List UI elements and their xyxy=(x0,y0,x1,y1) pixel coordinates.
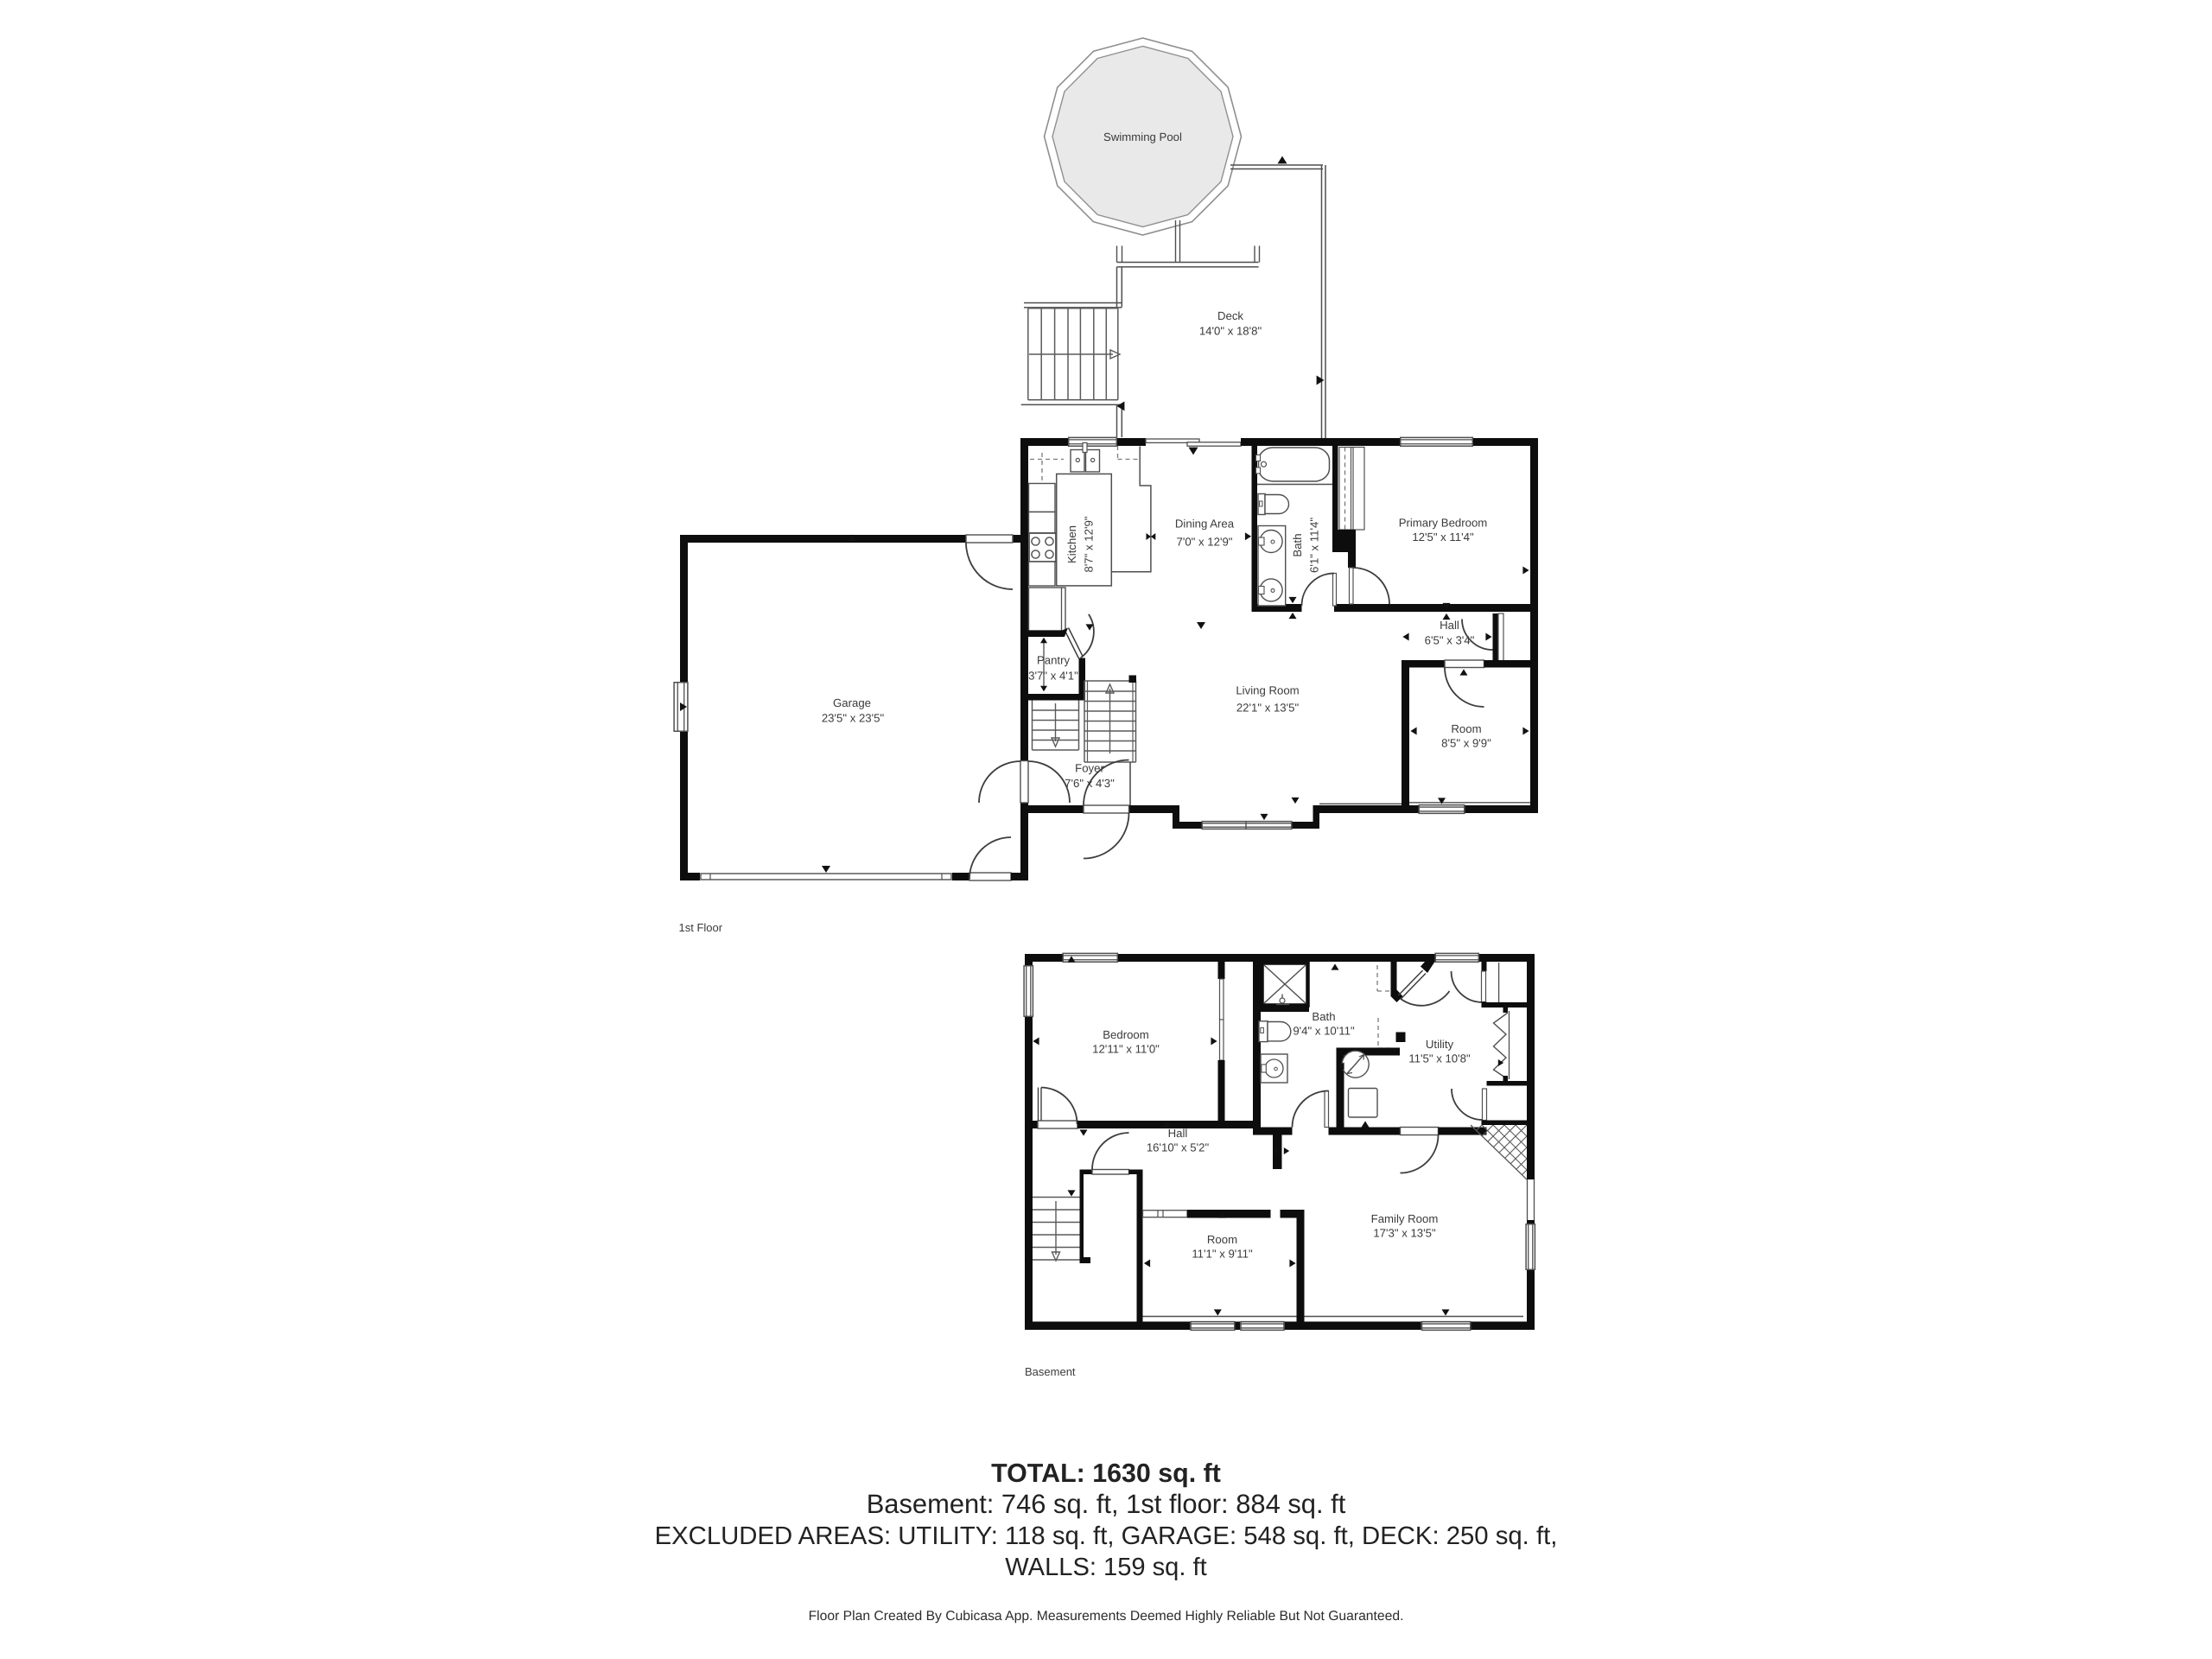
svg-text:Utility: Utility xyxy=(1426,1038,1454,1051)
svg-text:Bath: Bath xyxy=(1312,1010,1335,1023)
svg-text:Bedroom: Bedroom xyxy=(1103,1028,1149,1041)
svg-text:Basement: 746 sq. ft, 1st floo: Basement: 746 sq. ft, 1st floor: 884 sq.… xyxy=(867,1489,1346,1519)
svg-text:8'5" x 9'9": 8'5" x 9'9" xyxy=(1441,737,1491,750)
svg-text:Foyer: Foyer xyxy=(1075,762,1104,775)
svg-text:22'1" x 13'5": 22'1" x 13'5" xyxy=(1236,702,1300,715)
svg-text:23'5" x 23'5": 23'5" x 23'5" xyxy=(822,712,885,725)
svg-text:Room: Room xyxy=(1451,722,1481,735)
svg-text:Kitchen: Kitchen xyxy=(1065,525,1078,563)
svg-text:9'4" x 10'11": 9'4" x 10'11" xyxy=(1293,1025,1355,1038)
svg-text:7'6" x 4'3": 7'6" x 4'3" xyxy=(1065,777,1115,790)
svg-text:8'7" x 12'9": 8'7" x 12'9" xyxy=(1083,516,1096,572)
svg-text:Hall: Hall xyxy=(1168,1127,1188,1140)
svg-text:Pantry: Pantry xyxy=(1037,654,1071,667)
svg-text:Bath: Bath xyxy=(1291,533,1304,556)
svg-text:14'0" x 18'8": 14'0" x 18'8" xyxy=(1199,325,1262,338)
svg-text:1st Floor: 1st Floor xyxy=(679,921,723,934)
svg-text:Family Room: Family Room xyxy=(1371,1212,1439,1225)
svg-text:6'5" x 3'4": 6'5" x 3'4" xyxy=(1425,634,1475,647)
svg-text:TOTAL: 1630 sq. ft: TOTAL: 1630 sq. ft xyxy=(991,1459,1221,1488)
svg-text:Room: Room xyxy=(1207,1233,1237,1246)
svg-text:12'5" x 11'4": 12'5" x 11'4" xyxy=(1412,531,1474,543)
svg-text:Primary Bedroom: Primary Bedroom xyxy=(1399,517,1488,530)
svg-text:16'10" x 5'2": 16'10" x 5'2" xyxy=(1147,1141,1210,1154)
svg-text:EXCLUDED AREAS: UTILITY: 118 s: EXCLUDED AREAS: UTILITY: 118 sq. ft, GAR… xyxy=(655,1522,1558,1550)
svg-text:12'11" x 11'0": 12'11" x 11'0" xyxy=(1092,1043,1160,1056)
svg-text:Floor Plan Created By Cubicasa: Floor Plan Created By Cubicasa App. Meas… xyxy=(809,1609,1404,1624)
svg-text:Garage: Garage xyxy=(833,696,871,709)
svg-text:11'1" x 9'11": 11'1" x 9'11" xyxy=(1192,1248,1253,1261)
svg-text:Basement: Basement xyxy=(1025,1365,1076,1378)
svg-text:Living Room: Living Room xyxy=(1236,684,1299,697)
svg-text:3'7" x 4'1": 3'7" x 4'1" xyxy=(1028,670,1078,683)
svg-text:7'0" x 12'9": 7'0" x 12'9" xyxy=(1177,536,1233,549)
svg-text:6'1" x 11'4": 6'1" x 11'4" xyxy=(1308,518,1321,573)
svg-text:11'5" x 10'8": 11'5" x 10'8" xyxy=(1408,1052,1471,1065)
svg-text:17'3" x 13'5": 17'3" x 13'5" xyxy=(1373,1227,1436,1240)
svg-text:Dining Area: Dining Area xyxy=(1175,518,1235,531)
svg-text:Swimming Pool: Swimming Pool xyxy=(1103,130,1182,143)
svg-text:Deck: Deck xyxy=(1217,309,1243,322)
svg-text:Hall: Hall xyxy=(1440,619,1459,632)
svg-text:WALLS: 159 sq. ft: WALLS: 159 sq. ft xyxy=(1005,1554,1206,1581)
